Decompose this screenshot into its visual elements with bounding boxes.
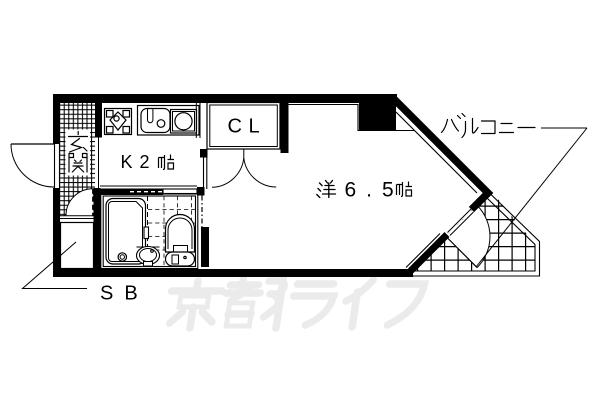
- svg-text:CL: CL: [228, 116, 267, 138]
- svg-text:6.5: 6.5: [345, 179, 404, 202]
- svg-text:K2: K2: [121, 152, 157, 172]
- svg-text:SB: SB: [100, 283, 149, 305]
